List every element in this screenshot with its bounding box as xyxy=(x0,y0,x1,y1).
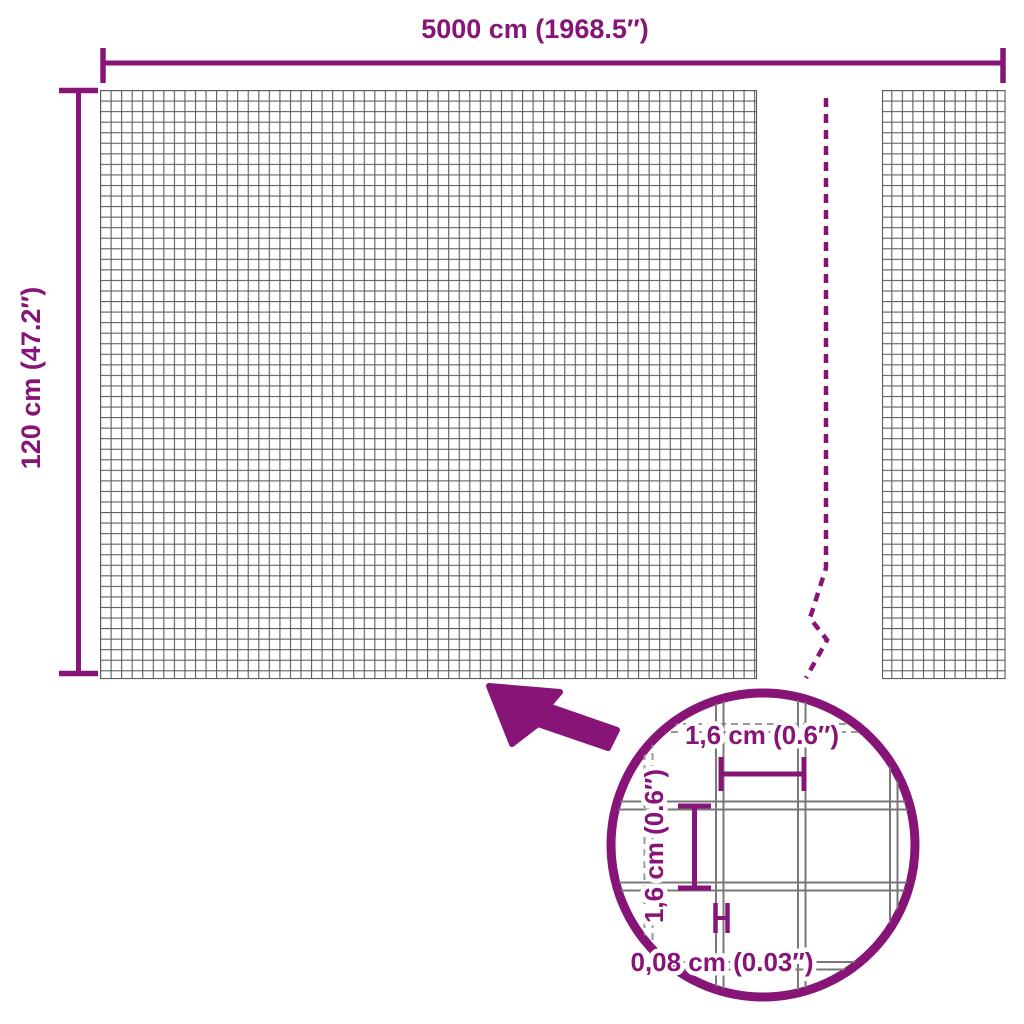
lens-width-label: 1,6 cm (0.6″) xyxy=(685,720,839,750)
lens-height-label: 1,6 cm (0.6″) xyxy=(639,769,669,923)
left-dimension-label: 120 cm (47.2″) xyxy=(16,287,46,470)
magnifier-arrow-icon xyxy=(489,686,617,748)
left-dimension: 120 cm (47.2″) xyxy=(16,90,98,674)
break-dashed-line xyxy=(806,98,827,678)
mesh-grid-texture xyxy=(100,90,757,679)
magnifier-lens: 1,6 cm (0.6″) 1,6 cm (0.6″) 0,08 cm (0.0… xyxy=(611,693,915,997)
top-dimension-label: 5000 cm (1968.5″) xyxy=(421,14,649,44)
diagram-canvas: 5000 cm (1968.5″) 120 cm (47.2″) xyxy=(0,0,1024,1024)
mesh-panel-left xyxy=(100,90,757,679)
top-dimension: 5000 cm (1968.5″) xyxy=(103,14,1003,83)
product-dimension-diagram: 5000 cm (1968.5″) 120 cm (47.2″) xyxy=(0,0,1024,1024)
mesh-panel-right xyxy=(882,90,1005,679)
mesh-grid-texture xyxy=(882,90,1005,679)
lens-wire-thickness-label: 0,08 cm (0.03″) xyxy=(630,947,813,977)
